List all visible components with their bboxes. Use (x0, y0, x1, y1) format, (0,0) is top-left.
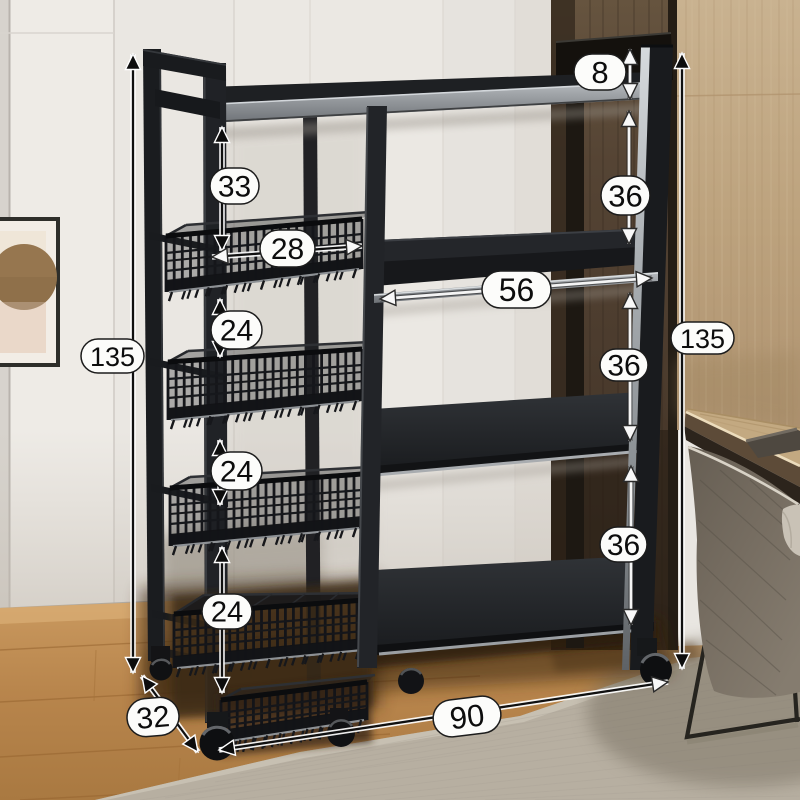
svg-text:90: 90 (448, 697, 486, 736)
svg-text:36: 36 (607, 529, 640, 562)
svg-text:24: 24 (211, 597, 243, 629)
svg-text:36: 36 (607, 350, 640, 383)
svg-text:135: 135 (680, 324, 725, 354)
svg-text:33: 33 (218, 171, 251, 204)
svg-text:32: 32 (135, 700, 171, 736)
svg-text:24: 24 (220, 456, 253, 489)
svg-text:56: 56 (499, 272, 535, 308)
svg-text:24: 24 (220, 315, 253, 348)
svg-text:135: 135 (90, 342, 135, 372)
svg-text:36: 36 (608, 178, 642, 213)
svg-text:28: 28 (271, 233, 304, 266)
svg-text:8: 8 (591, 55, 608, 90)
